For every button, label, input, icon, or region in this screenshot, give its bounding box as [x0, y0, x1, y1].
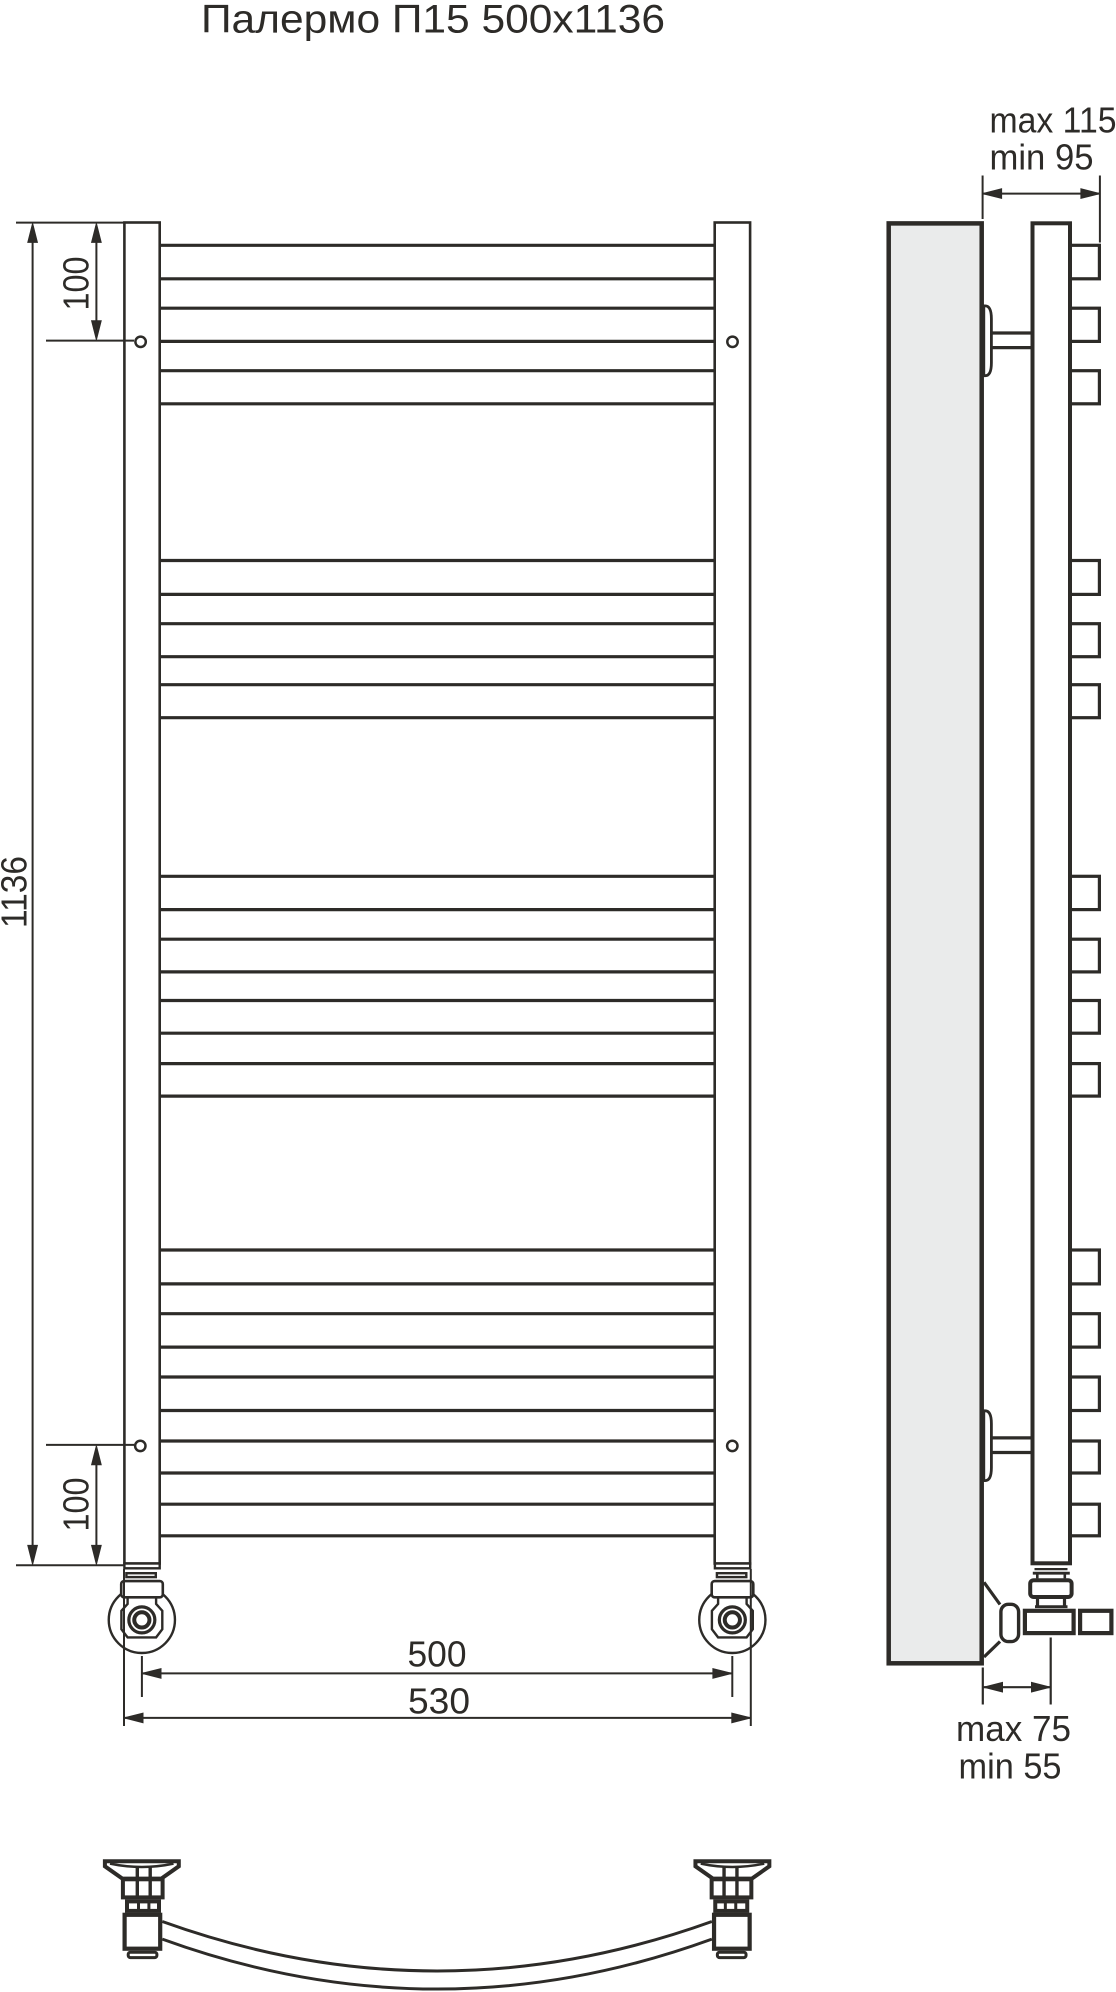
svg-text:Палермо П15 500x1136: Палермо П15 500x1136 — [201, 0, 665, 42]
svg-text:1136: 1136 — [0, 856, 35, 928]
svg-text:100: 100 — [56, 257, 97, 311]
svg-text:500: 500 — [408, 1634, 467, 1675]
svg-text:min 95: min 95 — [990, 137, 1094, 178]
svg-text:max 115: max 115 — [990, 100, 1116, 141]
svg-text:min 55: min 55 — [959, 1746, 1062, 1787]
svg-text:100: 100 — [56, 1478, 97, 1532]
svg-text:max 75: max 75 — [956, 1708, 1071, 1749]
svg-text:530: 530 — [408, 1680, 470, 1721]
